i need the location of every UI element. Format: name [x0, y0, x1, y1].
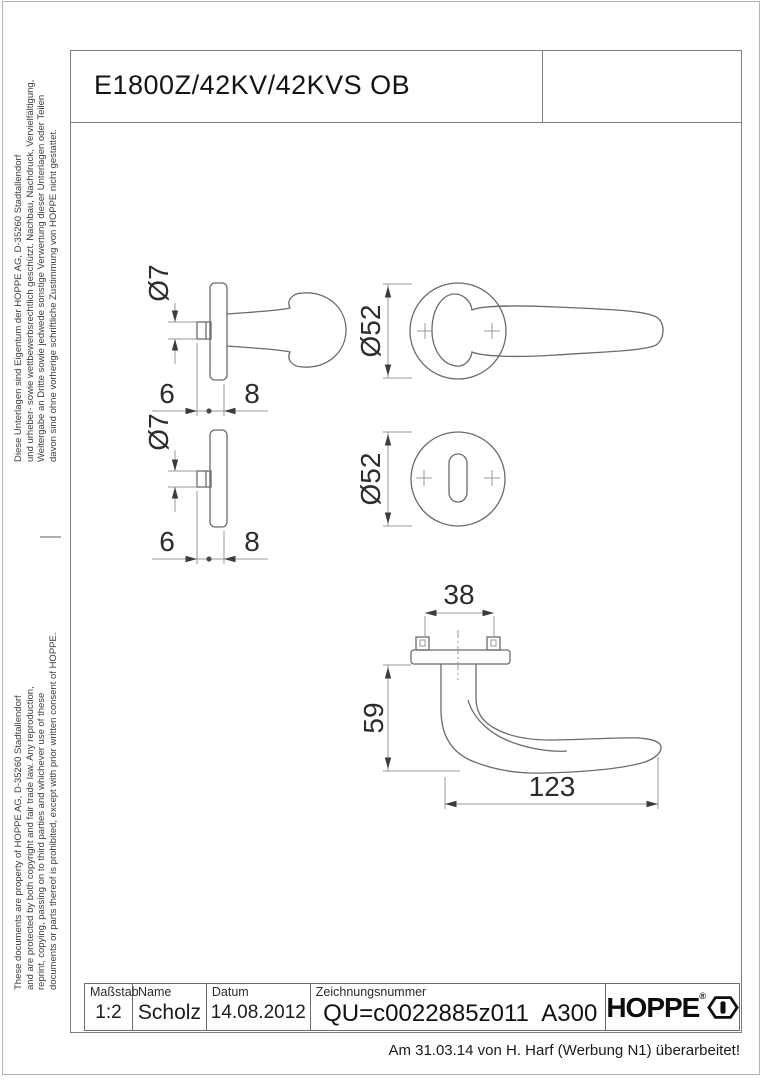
- arrow: [172, 311, 178, 323]
- handle-side-outline: [227, 293, 346, 367]
- dim-label-d7: Ø7: [143, 264, 174, 301]
- dim-label-6b: 6: [159, 526, 175, 557]
- arrow: [385, 286, 391, 298]
- view-handle-top: 38 59 123: [358, 579, 661, 809]
- handle-front-outline: [432, 294, 663, 366]
- dim-label-59: 59: [358, 702, 389, 733]
- title-block-drawing-number: Zeichnungsnummer QU=c0022885z011 A300: [311, 984, 607, 1030]
- date-value: 14.08.2012: [207, 999, 310, 1030]
- screw-slot-right: [491, 640, 496, 646]
- arrow: [385, 365, 391, 377]
- dim-label-38: 38: [443, 579, 474, 610]
- title-block-scale: Maßstab 1:2: [85, 984, 133, 1030]
- dim-lines-d52b: [383, 432, 412, 526]
- dim-label-d7b: Ø7: [143, 413, 174, 450]
- dim-label-6: 6: [159, 378, 175, 409]
- screw-slot-left: [420, 640, 425, 646]
- screw-cross-marks: [417, 323, 500, 339]
- title-block-logo: HOPPE®: [606, 984, 739, 1030]
- dim-label-8b: 8: [244, 526, 260, 557]
- rose-side-outline: [210, 283, 227, 380]
- screw-cross-marks: [416, 470, 500, 486]
- keyrose-stub: [197, 471, 211, 487]
- dim-dot: [206, 556, 211, 561]
- rose-plate: [411, 650, 510, 664]
- dim-lines-d7b: [168, 450, 197, 512]
- arrow: [483, 610, 495, 616]
- screw-post-left: [416, 637, 429, 650]
- drawing-sheet: { "header": { "title": "E1800Z/42KV/42KV…: [0, 0, 763, 1080]
- arrow: [425, 610, 437, 616]
- title-block-name: Name Scholz: [133, 984, 207, 1030]
- view-handle-side: Ø7 6 8: [143, 264, 346, 416]
- name-value: Scholz: [133, 999, 206, 1030]
- registered-mark: ®: [699, 991, 705, 1001]
- arrow: [224, 556, 236, 562]
- view-handle-front: Ø52: [355, 283, 663, 379]
- drawing-number-row: QU=c0022885z011 A300: [311, 999, 606, 1030]
- arrow: [385, 758, 391, 770]
- dim-lines-38: [425, 613, 494, 636]
- hoppe-hexagon-icon: [707, 994, 739, 1021]
- view-keyrose-side: Ø7 6 8: [143, 413, 268, 564]
- revision-note: Am 31.03.14 von H. Harf (Werbung N1) übe…: [388, 1042, 740, 1059]
- brand-logo: HOPPE®: [606, 984, 739, 1030]
- arrow: [445, 801, 457, 807]
- date-label: Datum: [207, 984, 310, 999]
- drawing-number-value: QU=c0022885z011: [311, 1000, 542, 1028]
- keyhole-slot: [449, 454, 467, 502]
- dim-label-d52b: Ø52: [355, 453, 386, 506]
- arrow: [186, 408, 198, 414]
- dim-lines-d52: [383, 284, 412, 378]
- title-block: Maßstab 1:2 Name Scholz Datum 14.08.2012…: [84, 983, 740, 1031]
- arrow: [385, 667, 391, 679]
- dim-label-123: 123: [529, 771, 576, 802]
- view-keyrose-front: Ø52: [355, 432, 505, 526]
- dim-dot: [206, 408, 211, 413]
- arrow: [385, 434, 391, 446]
- handle-top-inner-contour: [468, 700, 567, 751]
- dim-label-d52: Ø52: [355, 305, 386, 358]
- keyrose-front-outline: [411, 432, 505, 526]
- brand-name: HOPPE®: [606, 991, 705, 1024]
- technical-drawing: Ø7 6 8 Ø7 6 8 Ø52: [0, 0, 763, 1080]
- arrow: [186, 556, 198, 562]
- handle-top-outline-left: [441, 664, 661, 773]
- drawing-number-label: Zeichnungsnummer: [311, 984, 606, 999]
- arrow: [224, 408, 236, 414]
- arrow: [172, 487, 178, 499]
- revision-code: A300: [541, 1000, 605, 1028]
- arrow: [172, 460, 178, 472]
- keyrose-side-outline: [210, 430, 227, 527]
- dim-label-8: 8: [244, 378, 260, 409]
- handle-top-outline-right: [476, 664, 661, 746]
- arrow: [385, 513, 391, 525]
- arrow: [647, 801, 659, 807]
- arrow: [172, 339, 178, 351]
- dim-lines-59: [383, 665, 460, 771]
- screw-post-right: [487, 637, 500, 650]
- spindle-stub: [197, 322, 211, 339]
- name-label: Name: [133, 984, 206, 999]
- title-block-date: Datum 14.08.2012: [207, 984, 311, 1030]
- scale-value: 1:2: [85, 999, 132, 1030]
- scale-label: Maßstab: [85, 984, 132, 999]
